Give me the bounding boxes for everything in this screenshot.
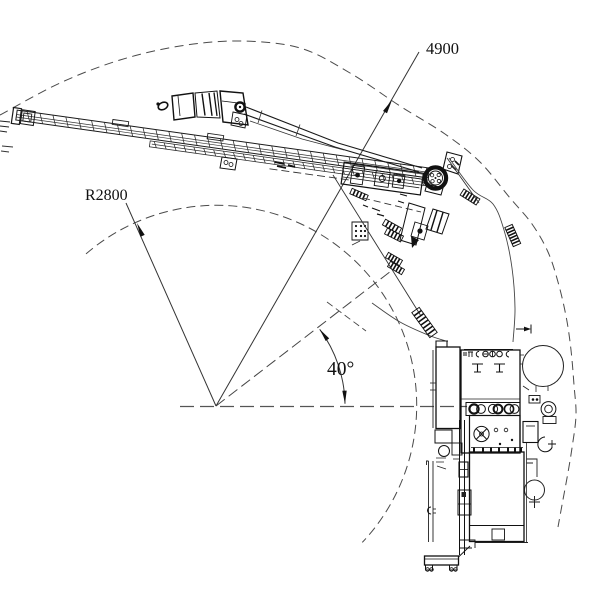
svg-text:40°: 40° [327, 359, 354, 380]
svg-text:R2800: R2800 [85, 187, 128, 204]
svg-text:4900: 4900 [426, 39, 459, 58]
